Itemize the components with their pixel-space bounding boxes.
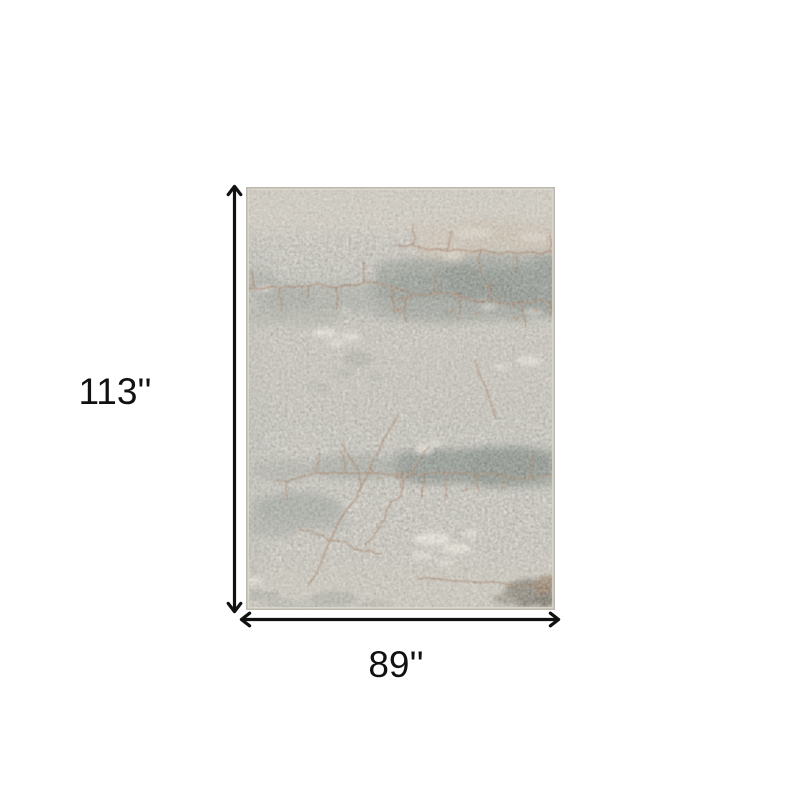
- svg-text:89'': 89'': [368, 644, 423, 685]
- svg-text:113'': 113'': [78, 371, 151, 412]
